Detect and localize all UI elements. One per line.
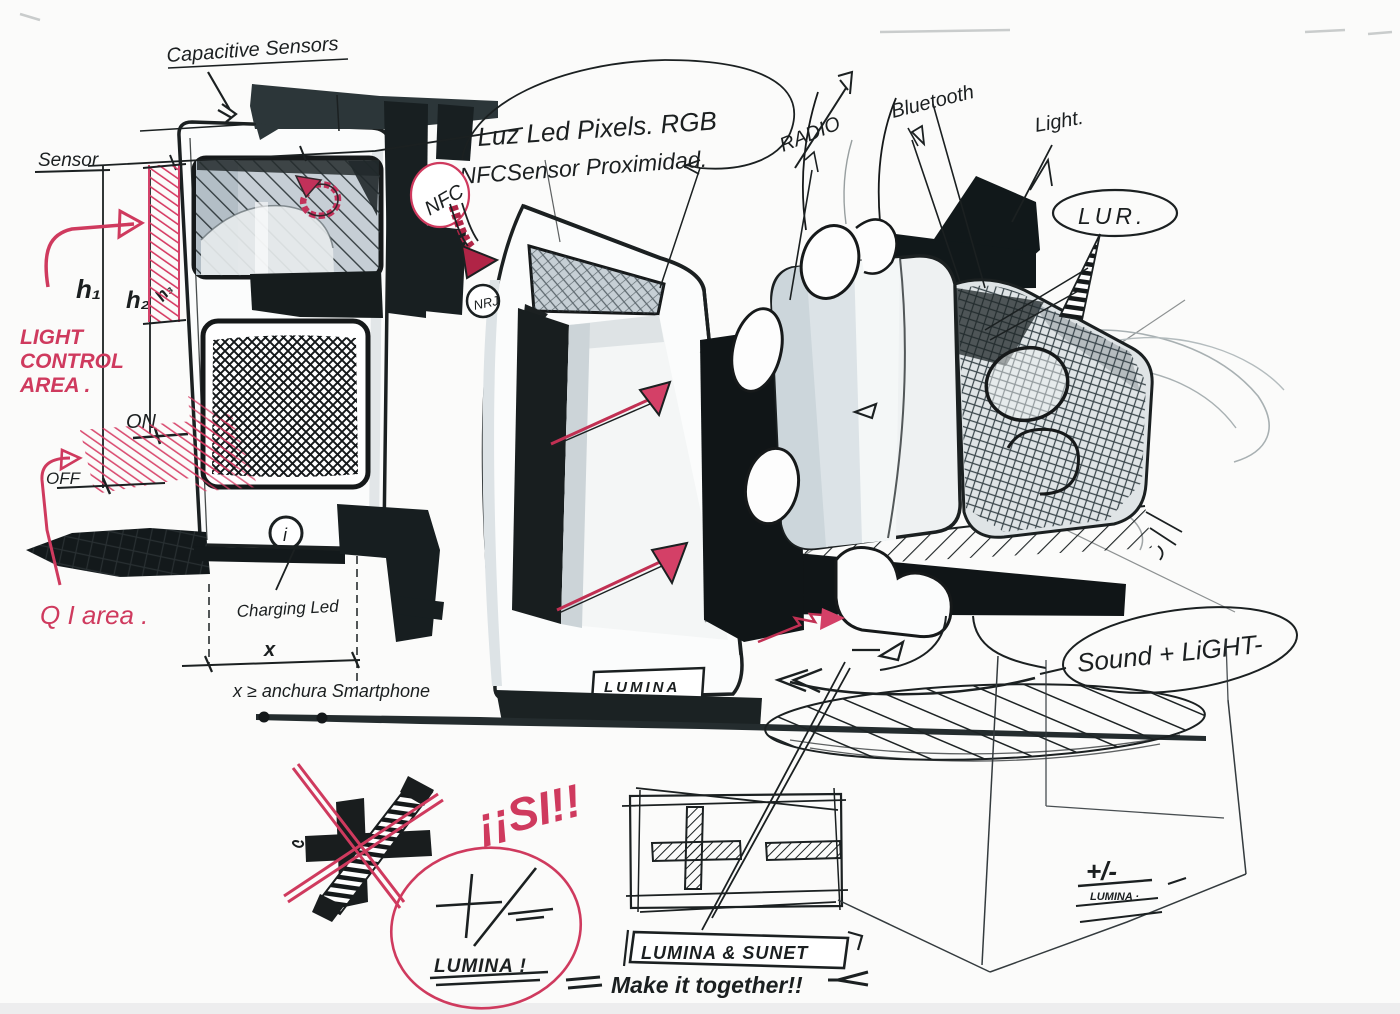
svg-text:LUMINA: LUMINA: [604, 679, 680, 696]
svg-text:AREA .: AREA .: [19, 374, 90, 397]
svg-text:+/-: +/-: [1086, 856, 1117, 886]
svg-text:CONTROL: CONTROL: [20, 350, 124, 373]
svg-text:LUR.: LUR.: [1078, 203, 1146, 229]
svg-text:x ≥ anchura Smartphone: x ≥ anchura Smartphone: [232, 681, 430, 701]
svg-text:Make it together!!: Make it together!!: [611, 972, 803, 998]
svg-text:LUMINA & SUNET: LUMINA & SUNET: [641, 943, 809, 963]
svg-text:Q I area .: Q I area .: [40, 600, 148, 630]
svg-text:x: x: [263, 639, 276, 661]
svg-text:h₂: h₂: [126, 287, 150, 314]
svg-text:h₁: h₁: [76, 274, 101, 304]
svg-text:Sensor: Sensor: [38, 150, 99, 171]
svg-text:LIGHT: LIGHT: [20, 326, 85, 349]
svg-text:OFF: OFF: [46, 469, 82, 488]
